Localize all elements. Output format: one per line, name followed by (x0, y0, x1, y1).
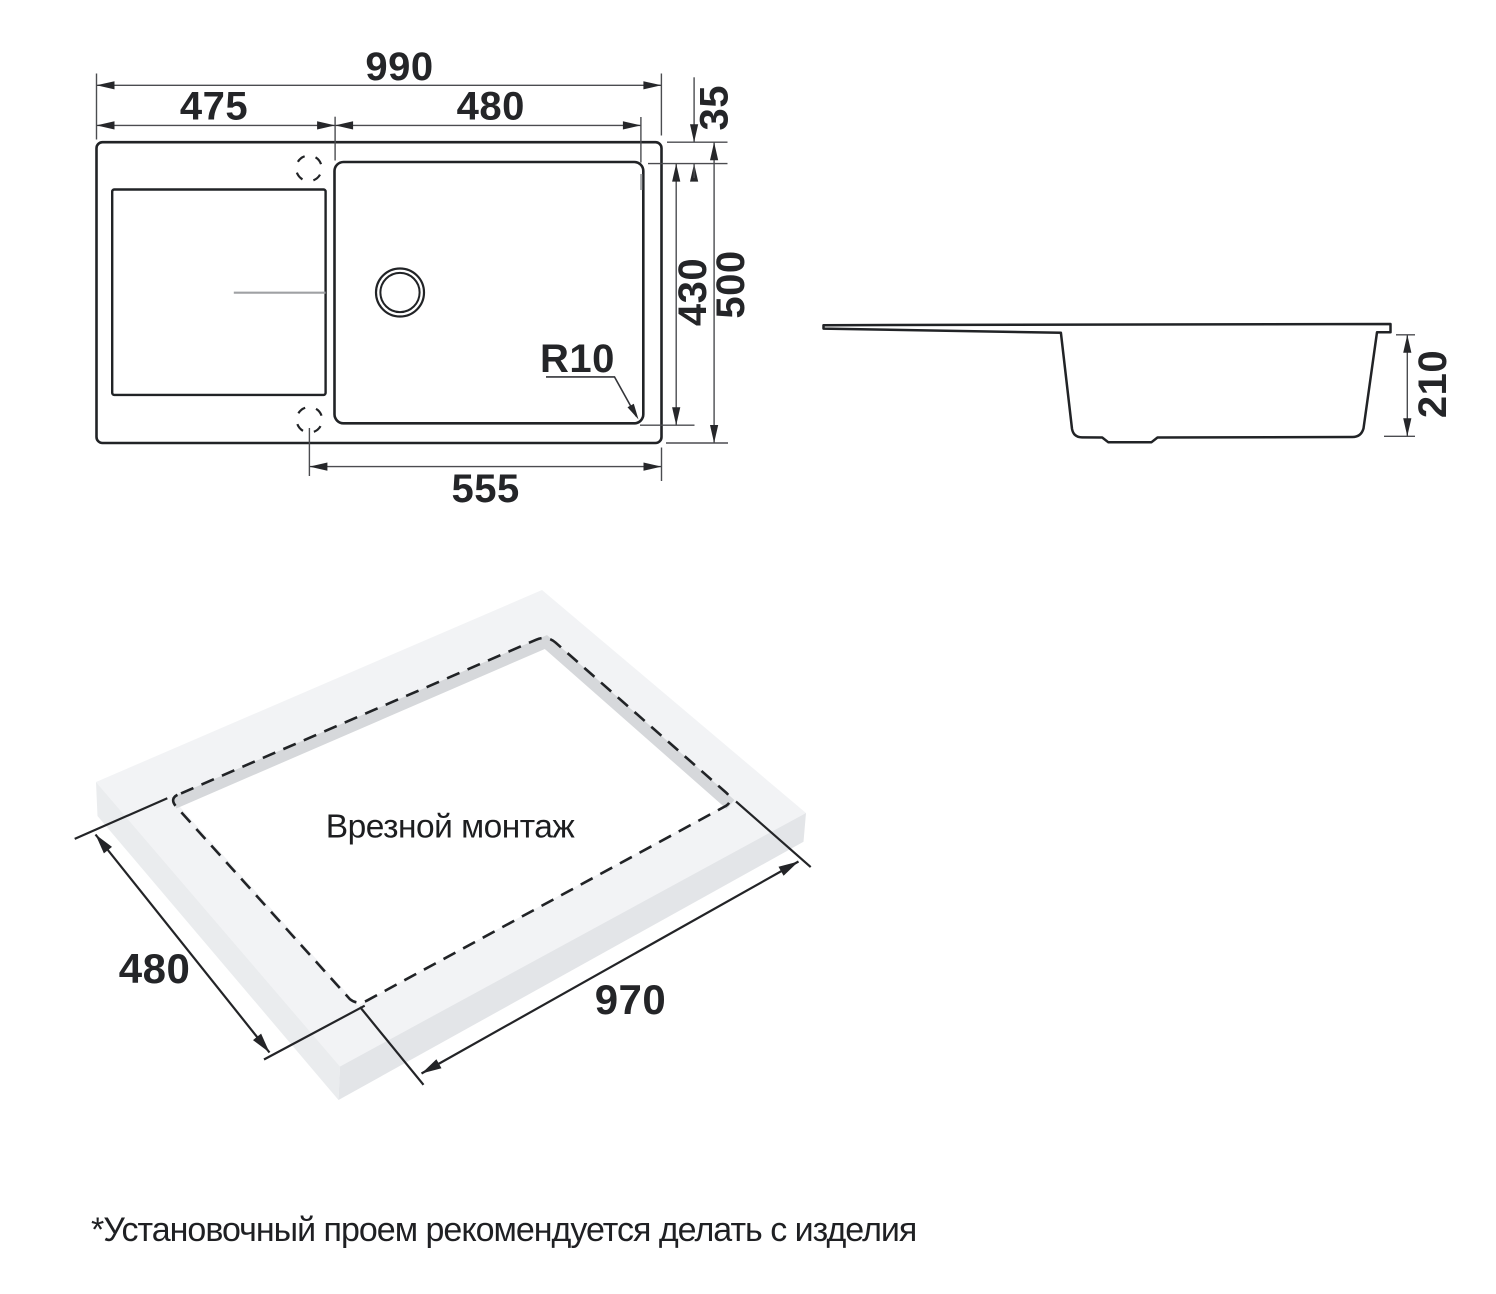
svg-text:970: 970 (595, 976, 667, 1023)
svg-text:480: 480 (119, 945, 191, 992)
svg-text:Врезной монтаж: Врезной монтаж (326, 809, 576, 846)
svg-text:475: 475 (180, 85, 248, 129)
svg-text:990: 990 (365, 45, 433, 89)
svg-text:500: 500 (709, 250, 753, 318)
svg-text:555: 555 (451, 467, 519, 511)
svg-text:210: 210 (1411, 350, 1455, 418)
svg-text:*Установочный проем рекомендуе: *Установочный проем рекомендуется делать… (91, 1211, 916, 1249)
svg-text:480: 480 (457, 85, 525, 129)
svg-text:R10: R10 (540, 337, 615, 381)
svg-text:35: 35 (692, 85, 736, 131)
